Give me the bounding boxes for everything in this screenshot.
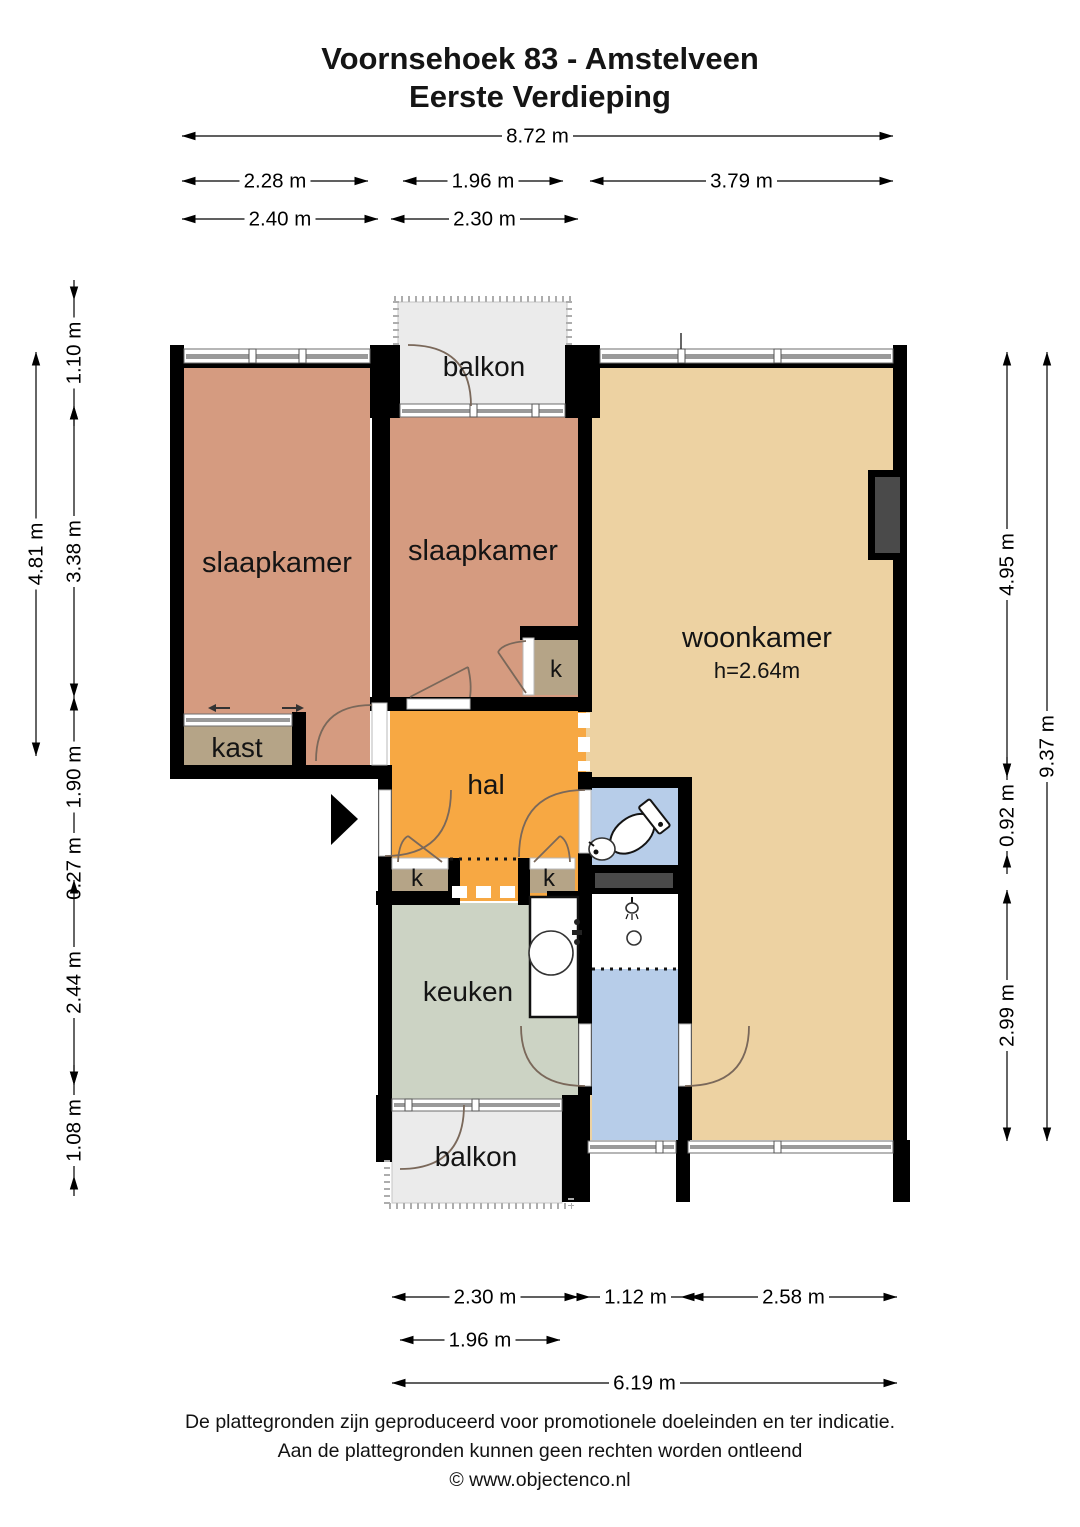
kitchen-counter [574, 919, 580, 925]
dimension: 1.96 m [403, 169, 563, 193]
room-label-keuken: keuken [423, 976, 513, 1007]
dimension-label: 2.30 m [454, 1286, 517, 1309]
kitchen-sink-icon [529, 931, 573, 975]
room-label-slaapkamer-middle: slaapkamer [408, 535, 558, 567]
copyright: © www.objectenco.nl [0, 1466, 1080, 1495]
door-openings [523, 638, 534, 695]
dimension-label: 2.44 m [63, 951, 86, 1014]
dimension-label: 3.38 m [63, 520, 86, 583]
door-openings [372, 703, 387, 765]
dimension: 3.38 m [62, 406, 86, 697]
door-openings [579, 1024, 591, 1086]
washstand-counter [595, 873, 673, 888]
dimension-label: 4.81 m [25, 523, 48, 586]
walls [376, 891, 457, 905]
dimension-label: 6.19 m [613, 1372, 676, 1395]
faucet-icon [572, 930, 582, 935]
walls [292, 712, 306, 765]
dimension: 2.99 m [995, 890, 1019, 1141]
dimension: 8.72 m [182, 124, 893, 148]
windows [774, 1141, 781, 1153]
windows [532, 404, 539, 417]
windows [299, 349, 306, 363]
dimension: 1.96 m [400, 1328, 560, 1352]
dimension: 1.10 m [62, 280, 86, 426]
dimension-label: 4.95 m [996, 533, 1019, 596]
disclaimer-line1: De plattegronden zijn geproduceerd voor … [0, 1408, 1080, 1437]
windows [774, 349, 781, 363]
room-label-balkon-bottom: balkon [435, 1141, 518, 1172]
entrance-arrow-icon [331, 794, 358, 845]
walls [600, 363, 893, 368]
dimension: 9.37 m [1035, 352, 1059, 1141]
door-openings [379, 790, 391, 856]
wall-niche [875, 477, 900, 553]
hand-basin-icon [594, 850, 599, 855]
walls [184, 363, 370, 368]
hand-basin-icon [589, 838, 615, 860]
door-openings [407, 699, 470, 709]
walls [893, 345, 907, 1140]
dimension: 4.81 m [24, 352, 48, 756]
kitchen-counter [574, 939, 580, 945]
dimension-label: 1.12 m [604, 1286, 667, 1309]
walls [578, 777, 692, 788]
dimension-label: 2.28 m [244, 170, 307, 193]
walls [893, 1140, 910, 1202]
walls [578, 345, 592, 712]
dimension-label: 1.96 m [449, 1329, 512, 1352]
dimension: 2.30 m [391, 207, 578, 231]
dimension-label: 0.92 m [996, 784, 1019, 847]
dimension-label: 1.96 m [452, 170, 515, 193]
dimension-label: 3.79 m [710, 170, 773, 193]
dimension: 0.92 m [995, 757, 1019, 874]
walls [170, 765, 392, 779]
dimension-label: 2.99 m [996, 984, 1019, 1047]
dimension-label: 2.40 m [249, 208, 312, 231]
windows [186, 718, 290, 722]
dimension: 2.30 m [392, 1285, 578, 1309]
windows [678, 349, 685, 363]
door-openings [579, 790, 591, 853]
room-label-woonkamer: woonkamer [681, 622, 832, 654]
room-label-woonkamer-ceiling-height: h=2.64m [714, 658, 800, 683]
shower-icon [626, 903, 638, 913]
dimension: 4.95 m [995, 352, 1019, 777]
floor-plan: slaapkamerslaapkamerwoonkamerh=2.64mbalk… [0, 0, 1080, 1527]
windows [690, 1145, 891, 1149]
dimension: 3.79 m [590, 169, 893, 193]
dimension: 2.44 m [62, 880, 86, 1085]
dimension: 1.12 m [570, 1285, 701, 1309]
dimension-label: 1.10 m [63, 322, 86, 385]
windows [472, 1099, 479, 1111]
kitchen-counter [529, 897, 582, 1017]
dimension: 2.58 m [690, 1285, 897, 1309]
room-label-closet-left: k [411, 865, 424, 892]
walls [372, 345, 390, 703]
dimension-label: 9.37 m [1036, 715, 1059, 778]
dimension-label: 8.72 m [506, 125, 569, 148]
room-label-kast: kast [211, 732, 263, 763]
disclaimer: De plattegronden zijn geproduceerd voor … [0, 1408, 1080, 1495]
windows [405, 1099, 412, 1111]
dimension: 2.28 m [182, 169, 368, 193]
dimension: 2.40 m [182, 207, 378, 231]
dimension-label: 2.58 m [762, 1286, 825, 1309]
windows [186, 354, 368, 359]
hand-basin-icon [589, 838, 615, 860]
room-label-closet-top: k [550, 656, 563, 683]
room-badkamer [592, 969, 678, 1140]
walls [562, 1095, 590, 1202]
walls [376, 1095, 392, 1162]
room-label-balkon-top: balkon [443, 351, 526, 382]
walls [370, 697, 592, 711]
windows [602, 354, 891, 359]
windows [656, 1141, 663, 1153]
drain-icon [627, 931, 641, 945]
room-label-slaapkamer-left: slaapkamer [202, 547, 352, 579]
door-openings [679, 1024, 691, 1086]
room-label-hal: hal [467, 769, 504, 800]
room-label-closet-right: k [543, 865, 556, 892]
dimension-label: 1.08 m [63, 1099, 86, 1162]
room-fills [184, 302, 893, 1203]
dimension: 6.19 m [392, 1371, 897, 1395]
disclaimer-line2: Aan de plattegronden kunnen geen rechten… [0, 1437, 1080, 1466]
windows [249, 349, 256, 363]
dimension-label: 2.30 m [453, 208, 516, 231]
walls [518, 858, 530, 905]
dimension: 1.08 m [62, 1065, 86, 1196]
dimension-label: 1.90 m [63, 746, 86, 809]
walls [170, 345, 184, 779]
